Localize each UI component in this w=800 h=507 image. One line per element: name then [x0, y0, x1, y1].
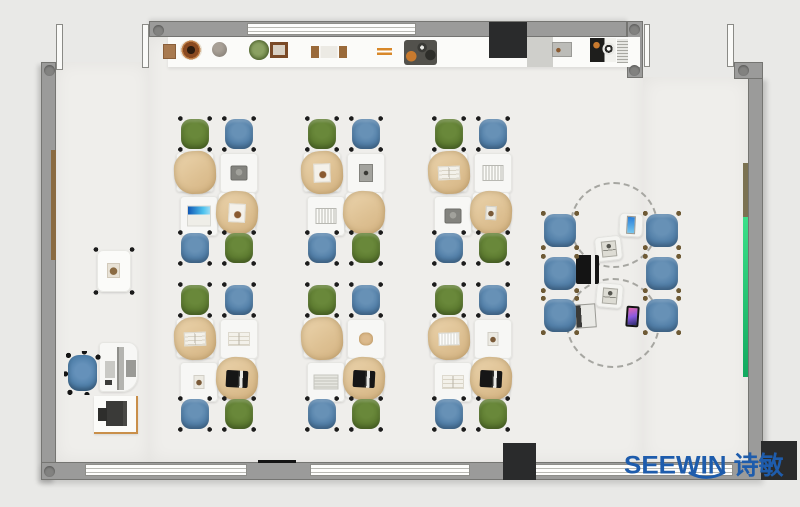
wall-post	[44, 65, 55, 76]
student-chair-blue	[307, 232, 337, 264]
student-chair-green	[180, 118, 210, 150]
device-book-open	[442, 375, 464, 389]
student-chair-blue	[180, 398, 210, 430]
appliance-decor-item	[590, 38, 616, 62]
media-cabinet	[489, 22, 527, 58]
student-chair-green	[351, 398, 381, 430]
chair-seat	[308, 233, 336, 263]
logo-swoosh-icon	[688, 471, 726, 482]
sphere-decor-item	[212, 42, 227, 57]
top-window	[247, 23, 416, 35]
wall-post	[44, 466, 55, 477]
chair-seat	[479, 119, 507, 149]
student-chair-blue	[434, 232, 464, 264]
sticks-decor-item	[377, 48, 392, 56]
device-book-striped	[483, 165, 504, 181]
student-chair-blue	[434, 398, 464, 430]
chair-seat	[435, 399, 463, 429]
back-door-leaf-right	[727, 24, 734, 67]
school-bag	[173, 150, 216, 194]
brand-logo-chinese: 诗敏	[734, 446, 784, 482]
school-bag	[215, 356, 259, 401]
chair-seat	[181, 119, 209, 149]
school-bag	[342, 356, 386, 401]
wall-post	[629, 24, 640, 35]
device-photo-small	[194, 375, 205, 389]
device-tablet-dark	[359, 164, 373, 182]
student-desk	[220, 153, 258, 193]
collab-chair-blue	[645, 298, 679, 333]
device-tablet-blue	[626, 216, 636, 234]
student-chair-green	[224, 232, 254, 264]
student-chair-blue	[351, 284, 381, 316]
floorplan-scene: SEEWIN 诗敏	[0, 0, 800, 507]
chair-seat	[544, 214, 576, 247]
student-chair-blue	[180, 232, 210, 264]
device-photo-small	[485, 205, 497, 220]
desk-cluster-3	[430, 118, 514, 264]
chair-seat	[435, 233, 463, 263]
chair-seat	[544, 299, 576, 332]
student-chair-green	[478, 232, 508, 264]
school-bag	[300, 150, 343, 194]
desk-cluster-1	[176, 118, 260, 264]
device-laptop-gray	[231, 166, 248, 181]
chair-seat	[225, 285, 253, 315]
student-chair-blue	[478, 284, 508, 316]
bottom-column	[503, 443, 536, 480]
device-book-open	[184, 331, 206, 346]
chair-seat	[479, 285, 507, 315]
bottom-window-2	[310, 464, 470, 476]
desk-cluster-6	[430, 284, 514, 430]
school-bag	[469, 190, 513, 235]
school-bag	[173, 316, 216, 360]
teacher-chair	[64, 351, 101, 395]
wall-post	[738, 65, 749, 76]
wall-post	[153, 25, 164, 36]
chair-seat	[308, 119, 336, 149]
plant-decor-item	[249, 40, 269, 60]
student-desk	[347, 153, 385, 193]
device-laptop-sketch	[601, 287, 617, 304]
student-chair-blue	[351, 118, 381, 150]
lectern	[97, 250, 131, 292]
chair-seat	[435, 119, 463, 149]
student-chair-green	[307, 118, 337, 150]
green-board	[743, 217, 748, 377]
device-paper-sketch	[228, 203, 246, 223]
back-door-leaf-left	[644, 24, 650, 67]
student-chair-blue	[224, 284, 254, 316]
printer-icon	[106, 401, 127, 426]
student-chair-green	[434, 118, 464, 150]
wood-wall-panel	[51, 150, 56, 260]
device-keyboard-white	[438, 332, 459, 346]
school-bag	[469, 356, 513, 401]
chair-seat	[479, 399, 507, 429]
student-desk	[220, 319, 258, 359]
chair-seat	[352, 285, 380, 315]
school-bag	[215, 190, 259, 235]
chair-seat	[225, 119, 253, 149]
chair-seat	[308, 285, 336, 315]
device-photo-small	[488, 332, 499, 346]
wall-post	[629, 65, 640, 76]
student-chair-blue	[307, 398, 337, 430]
school-bag	[427, 316, 470, 360]
device-laptop-sketch	[600, 240, 617, 257]
printer-table	[94, 396, 138, 434]
bottom-window-1	[85, 464, 247, 476]
device-paper-sketch	[313, 163, 331, 183]
keyboard-icon	[105, 380, 112, 385]
student-chair-green	[478, 398, 508, 430]
student-chair-blue	[478, 118, 508, 150]
collab-chair-blue	[543, 256, 577, 291]
chair-seat	[646, 299, 678, 332]
school-bag	[300, 316, 343, 360]
collab-chair-blue	[645, 256, 679, 291]
desk-cluster-5	[303, 284, 387, 430]
device-screen-blue	[187, 206, 211, 227]
chair-seat	[646, 257, 678, 290]
chair-seat	[352, 119, 380, 149]
chair-seat	[544, 257, 576, 290]
school-bag	[427, 150, 470, 194]
device-newspaper	[314, 375, 339, 390]
bookends-decor-item	[311, 46, 347, 58]
chair-seat	[308, 399, 336, 429]
chair-seat	[352, 233, 380, 263]
right-wall	[748, 77, 763, 462]
frame-decor-item	[270, 42, 288, 58]
pin-board	[743, 163, 748, 217]
entry-door-leaf-left	[56, 24, 63, 70]
device-tablet-pink	[625, 306, 639, 328]
collab-chair-blue	[645, 213, 679, 248]
monitor-back	[126, 360, 136, 377]
chair-seat	[646, 214, 678, 247]
collab-chair-blue	[543, 298, 577, 333]
chair-seat	[352, 399, 380, 429]
student-desk	[347, 319, 385, 359]
chair-seat	[479, 233, 507, 263]
device-bag-icon	[359, 333, 373, 346]
student-chair-green	[351, 232, 381, 264]
brand-logo: SEEWIN 诗敏	[624, 446, 784, 482]
device-laptop-black	[576, 255, 599, 284]
device-book-striped	[316, 208, 337, 224]
collab-table	[595, 282, 624, 309]
student-desk	[474, 319, 512, 359]
entry-door-leaf-right	[142, 24, 149, 68]
device-laptop-black	[480, 369, 503, 387]
chair-seat	[181, 399, 209, 429]
student-chair-green	[434, 284, 464, 316]
chair-seat	[225, 233, 253, 263]
device-laptop-gray	[445, 209, 462, 224]
desk-cluster-2	[303, 118, 387, 264]
student-desk	[474, 153, 512, 193]
collab-chair-blue	[543, 213, 577, 248]
school-bag	[342, 190, 386, 235]
printer-tray	[98, 408, 107, 421]
teacher-desk	[99, 342, 138, 392]
chair-seat	[181, 233, 209, 263]
device-laptop-black	[353, 369, 376, 387]
desk-pad	[105, 361, 115, 378]
chair-seat	[225, 399, 253, 429]
vent-decor-item	[617, 39, 628, 63]
student-chair-green	[307, 284, 337, 316]
student-chair-green	[224, 398, 254, 430]
student-chair-blue	[224, 118, 254, 150]
desk-cluster-4	[176, 284, 260, 430]
tray-decor-item	[404, 40, 437, 65]
graybox-decor-item	[552, 42, 572, 57]
window-sill-mark	[258, 460, 296, 463]
lectern-picture	[107, 263, 120, 278]
chair-seat	[181, 285, 209, 315]
device-book-open	[228, 332, 250, 346]
device-book-open	[438, 165, 460, 180]
device-laptop-black	[226, 369, 249, 387]
collab-table	[618, 212, 643, 237]
monitor-icon	[117, 347, 124, 390]
student-chair-green	[180, 284, 210, 316]
box-decor-item	[163, 44, 176, 59]
teacher-chair-seat	[68, 355, 97, 391]
chair-seat	[435, 285, 463, 315]
left-wall	[41, 62, 56, 480]
bowl-decor-item	[180, 40, 202, 60]
shelf-divider	[527, 37, 553, 67]
